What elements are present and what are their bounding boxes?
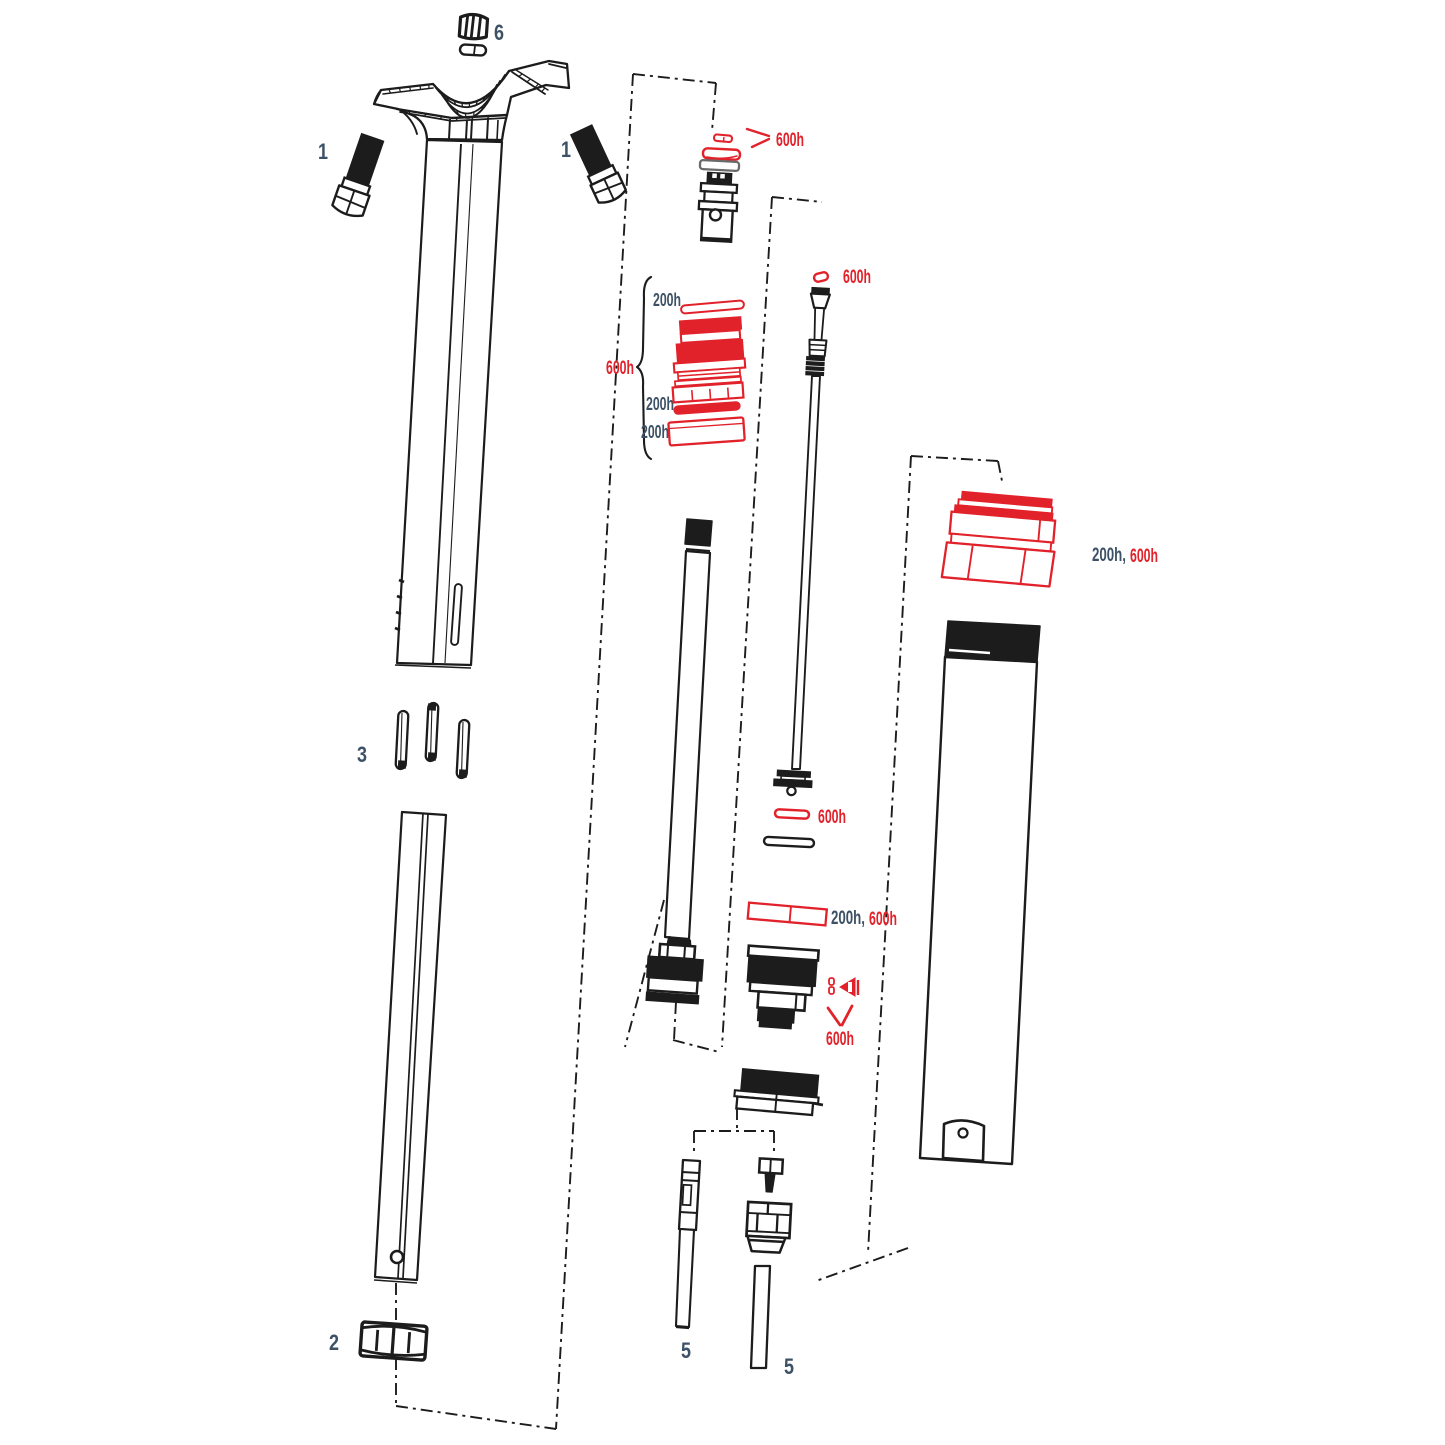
svg-text:600h: 600h: [869, 909, 897, 930]
svg-text:600h: 600h: [606, 358, 634, 379]
svg-text:200h,: 200h,: [831, 908, 865, 929]
svg-text:1: 1: [318, 139, 328, 164]
svg-text:600h: 600h: [1130, 546, 1158, 567]
svg-text:3: 3: [357, 742, 367, 767]
svg-text:200h: 200h: [641, 422, 669, 442]
svg-text:6: 6: [494, 20, 504, 45]
svg-text:1: 1: [561, 137, 571, 162]
svg-text:200h,: 200h,: [1092, 545, 1126, 566]
svg-text:600h: 600h: [826, 1029, 854, 1050]
svg-text:600h: 600h: [843, 267, 871, 288]
svg-text:200h: 200h: [646, 394, 674, 414]
svg-text:2: 2: [329, 1330, 339, 1355]
svg-text:5: 5: [681, 1338, 691, 1363]
svg-text:600h: 600h: [818, 807, 846, 828]
svg-text:200h: 200h: [653, 290, 681, 310]
svg-text:600h: 600h: [776, 130, 804, 151]
svg-text:5: 5: [784, 1354, 794, 1379]
